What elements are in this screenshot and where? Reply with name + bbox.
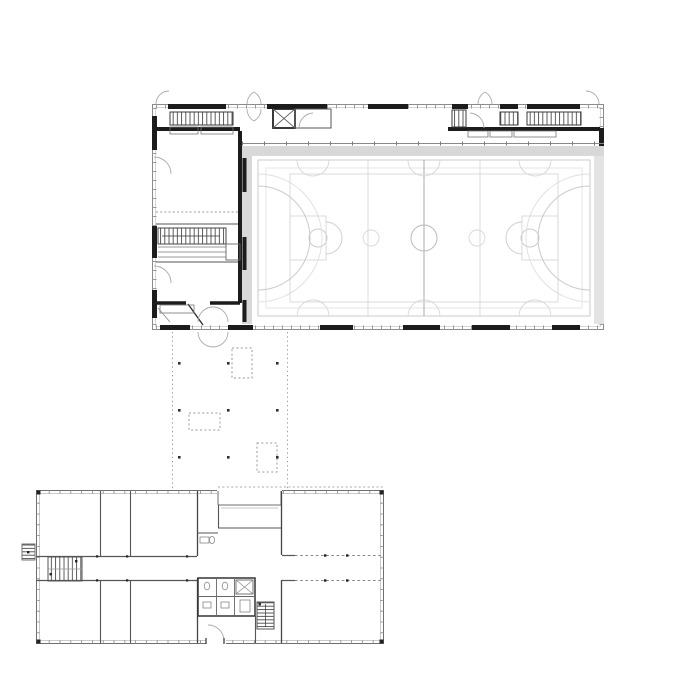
door-arc (198, 307, 213, 322)
elevator-x-mark (273, 109, 295, 128)
partition-dot (324, 554, 326, 556)
planter-dashed (257, 443, 277, 472)
planter-dashed (189, 413, 220, 430)
bench-shelf (514, 131, 556, 137)
gallery-band-right (594, 156, 604, 324)
planter-dashed (232, 348, 252, 378)
stair-landing (226, 244, 240, 260)
bench-shelf (490, 131, 512, 137)
hinge-dot (259, 603, 261, 605)
floor-plan-drawing (0, 0, 700, 700)
hinge-dot (186, 579, 188, 581)
hinge-dot (75, 560, 77, 562)
door-arc (470, 113, 484, 128)
school-building (22, 486, 384, 646)
tree-dot (227, 456, 230, 459)
hinge-dot (50, 573, 52, 575)
key-arc (506, 222, 522, 254)
toilet-fixture (204, 582, 210, 590)
tree-dot (178, 409, 181, 412)
free-throw-circle (469, 230, 485, 246)
free-throw-circle (363, 230, 379, 246)
bench-shelf (468, 131, 488, 137)
hall-outer-wall (153, 105, 604, 330)
partition-dot (346, 554, 348, 556)
door-arc (198, 332, 213, 347)
sports-hall (152, 91, 604, 347)
gallery-band-top (242, 146, 604, 156)
locker-bench-hatch (527, 112, 581, 125)
courtyard (173, 332, 288, 489)
door-leaf (158, 308, 170, 322)
corner-pier (37, 640, 41, 644)
door-opening-mask (206, 639, 226, 646)
locker-bench-hatch (500, 112, 518, 125)
school-outer-wall (37, 491, 384, 644)
ancillary-room (295, 109, 331, 128)
partition-dot (324, 579, 326, 581)
tree-dot (276, 456, 279, 459)
tree-dot (276, 362, 279, 365)
partition-dot (346, 579, 348, 581)
hinge-dot (27, 551, 29, 553)
hinge-dot (186, 555, 188, 557)
floor-plan-canvas (0, 0, 700, 700)
door-arc (299, 113, 313, 128)
door-arc (154, 266, 171, 283)
tree-dot (227, 362, 230, 365)
corner-pier (380, 640, 384, 644)
shaft-x-mark (236, 580, 253, 594)
locker-bench-hatch (452, 110, 466, 127)
hall-inner-wall-line (156, 108, 601, 327)
tree-dot (178, 456, 181, 459)
cross-court-circle (521, 229, 539, 247)
door-leaf (188, 304, 203, 325)
hinge-dot (96, 555, 98, 557)
door-arc (156, 91, 169, 104)
toilet-fixture (222, 582, 228, 590)
shower-fixture (240, 600, 250, 612)
door-arc (213, 307, 228, 322)
door-arc (213, 332, 228, 347)
tree-dot (276, 409, 279, 412)
tree-dot (227, 409, 230, 412)
sink-fixture (221, 602, 229, 608)
corner-pier (37, 491, 41, 495)
corner-pier (380, 491, 384, 495)
tree-dot (178, 362, 181, 365)
door-arc (208, 625, 224, 641)
door-arc (154, 157, 171, 174)
toilet-fixture (209, 536, 214, 543)
locker-bench-hatch (170, 112, 233, 125)
school-inner-wall-line (40, 494, 381, 641)
hinge-dot (96, 579, 98, 581)
key-arc (326, 222, 342, 254)
door-arc (586, 91, 599, 104)
cross-court-circle (309, 229, 327, 247)
toilet-fixture (200, 537, 209, 543)
entrance-recess-mask (217, 486, 282, 503)
wc-block (198, 578, 255, 616)
door-arc (478, 92, 492, 104)
hinge-dot (126, 579, 128, 581)
sink-fixture (203, 602, 211, 608)
door-arc (247, 92, 261, 104)
hinge-dot (126, 555, 128, 557)
door-arc (247, 109, 261, 121)
